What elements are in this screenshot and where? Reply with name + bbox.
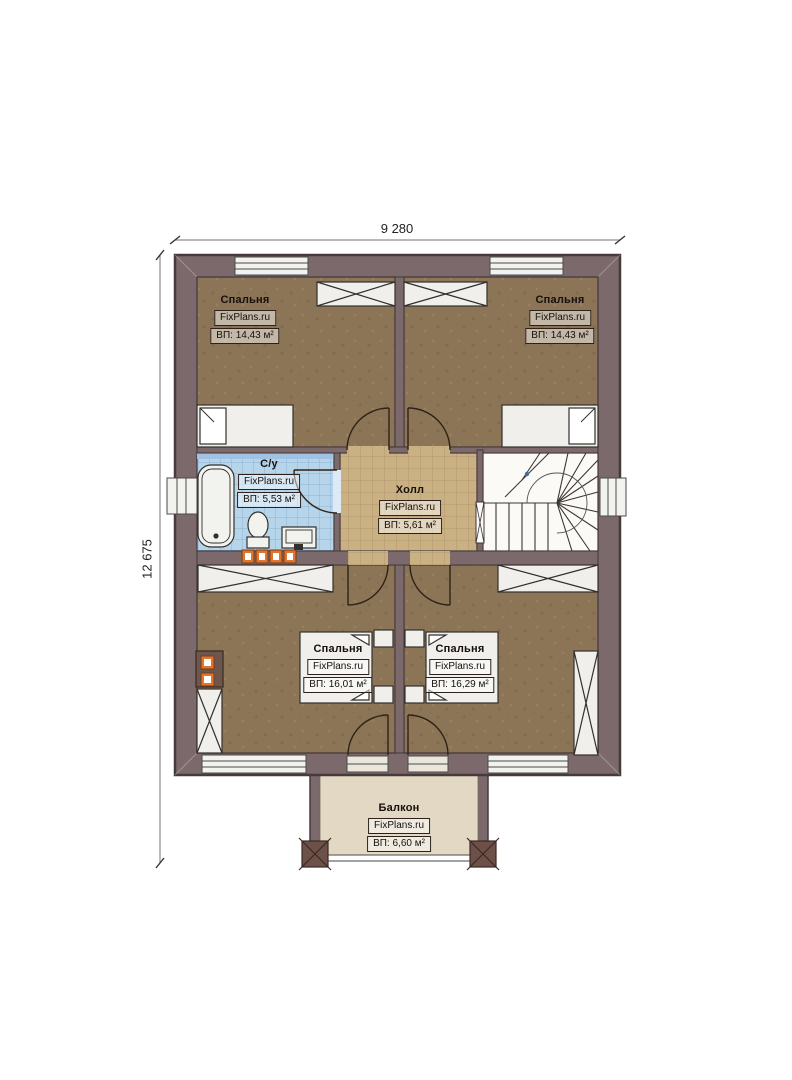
watermark-box: FixPlans.ru (238, 474, 300, 490)
room-area: ВП: 5,53 м² (237, 492, 301, 508)
floor-plan-drawing (0, 0, 792, 1080)
room-area: ВП: 14,43 м² (210, 328, 279, 344)
room-label-bedroom-bottom-right: Спальня FixPlans.ru ВП: 16,29 м² (425, 643, 494, 693)
watermark-box: FixPlans.ru (214, 310, 276, 326)
room-name: Спальня (525, 294, 594, 306)
dimension-width-label: 9 280 (381, 221, 414, 236)
room-name: С/у (237, 458, 301, 470)
closet-top-right (404, 282, 487, 306)
watermark-box: FixPlans.ru (429, 659, 491, 675)
stair-marker-dot (525, 472, 529, 476)
watermark-box: FixPlans.ru (368, 818, 430, 834)
floor-staircase (483, 453, 598, 551)
room-name: Спальня (425, 643, 494, 655)
window-bottom-left (202, 755, 306, 773)
watermark-box: FixPlans.ru (529, 310, 591, 326)
floor-plan-page: 9 280 12 675 Спальня FixPlans.ru ВП: 14,… (0, 0, 792, 1080)
toilet (247, 512, 269, 548)
dimension-height-label: 12 675 (140, 539, 155, 579)
watermark-box: FixPlans.ru (379, 500, 441, 516)
watermark-box: FixPlans.ru (307, 659, 369, 675)
room-area: ВП: 16,01 м² (303, 677, 372, 693)
room-label-bedroom-top-right: Спальня FixPlans.ru ВП: 14,43 м² (525, 294, 594, 344)
wardrobe-right-wall (574, 651, 598, 755)
bed-top-right (502, 405, 598, 447)
room-area: ВП: 5,61 м² (378, 518, 442, 534)
chimney-block (196, 651, 223, 687)
window-top-right (490, 257, 563, 275)
room-label-bedroom-top-left: Спальня FixPlans.ru ВП: 14,43 м² (210, 294, 279, 344)
wardrobe-left-wall (197, 689, 222, 753)
room-label-bedroom-bottom-left: Спальня FixPlans.ru ВП: 16,01 м² (303, 643, 372, 693)
window-top-left (235, 257, 308, 275)
closet-top-left (317, 282, 395, 306)
room-name: Балкон (367, 802, 431, 814)
room-area: ВП: 14,43 м² (525, 328, 594, 344)
sink (282, 527, 316, 550)
closet-bottom-right (498, 565, 598, 592)
bed-top-left (197, 405, 293, 447)
closet-bottom-left (198, 565, 333, 592)
room-label-bathroom: С/у FixPlans.ru ВП: 5,53 м² (237, 458, 301, 508)
room-label-balcony: Балкон FixPlans.ru ВП: 6,60 м² (367, 802, 431, 852)
room-name: Спальня (210, 294, 279, 306)
room-area: ВП: 6,60 м² (367, 836, 431, 852)
window-left-bathroom (167, 478, 197, 514)
bathtub (198, 465, 234, 547)
room-area: ВП: 16,29 м² (425, 677, 494, 693)
room-name: Холл (378, 484, 442, 496)
window-bottom-right (488, 755, 568, 773)
room-name: Спальня (303, 643, 372, 655)
window-right-stairs (600, 478, 626, 516)
room-label-hall: Холл FixPlans.ru ВП: 5,61 м² (378, 484, 442, 534)
